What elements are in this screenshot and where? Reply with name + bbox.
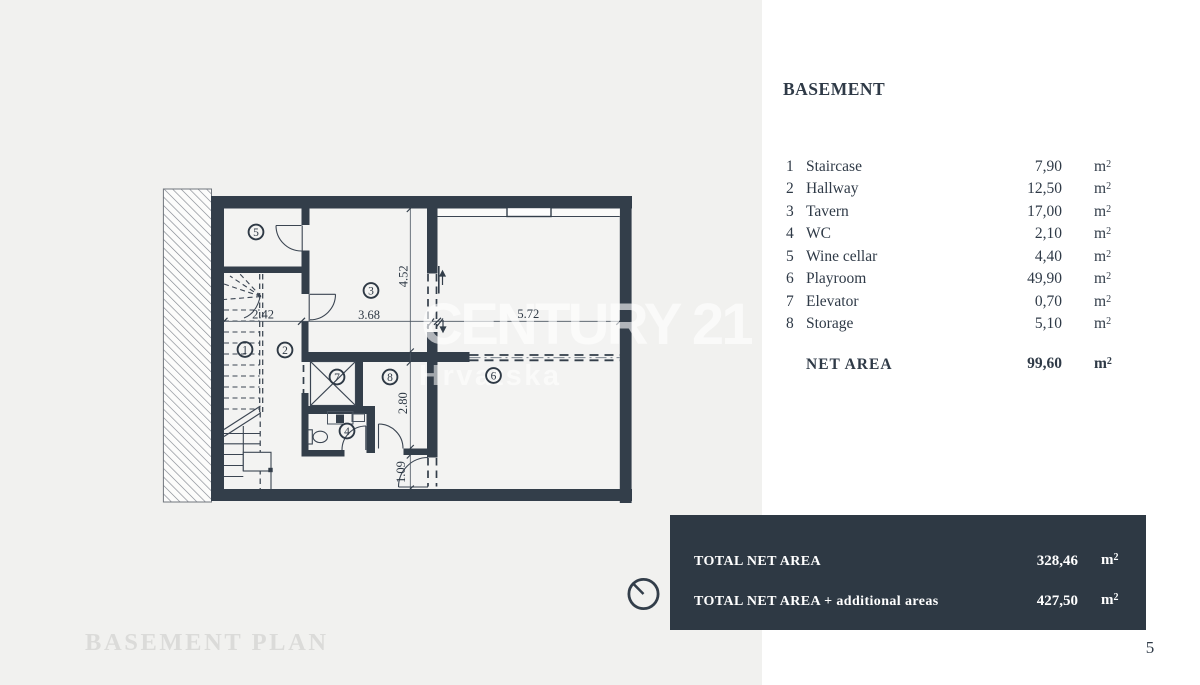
svg-text:1.09: 1.09 <box>394 461 408 483</box>
svg-text:CENTURY 21: CENTURY 21 <box>421 292 752 357</box>
svg-text:4: 4 <box>344 426 350 438</box>
svg-text:8: 8 <box>387 372 393 384</box>
svg-text:5.72: 5.72 <box>517 307 539 321</box>
svg-text:1: 1 <box>242 345 248 357</box>
svg-text:3: 3 <box>368 286 374 298</box>
svg-text:2.42: 2.42 <box>252 308 274 322</box>
svg-text:2.80: 2.80 <box>396 392 410 414</box>
svg-text:3.68: 3.68 <box>358 308 380 322</box>
svg-text:7: 7 <box>334 372 340 384</box>
svg-text:5: 5 <box>253 227 259 239</box>
svg-text:4.52: 4.52 <box>396 265 410 287</box>
svg-text:2: 2 <box>282 345 288 357</box>
svg-text:6: 6 <box>491 371 497 383</box>
